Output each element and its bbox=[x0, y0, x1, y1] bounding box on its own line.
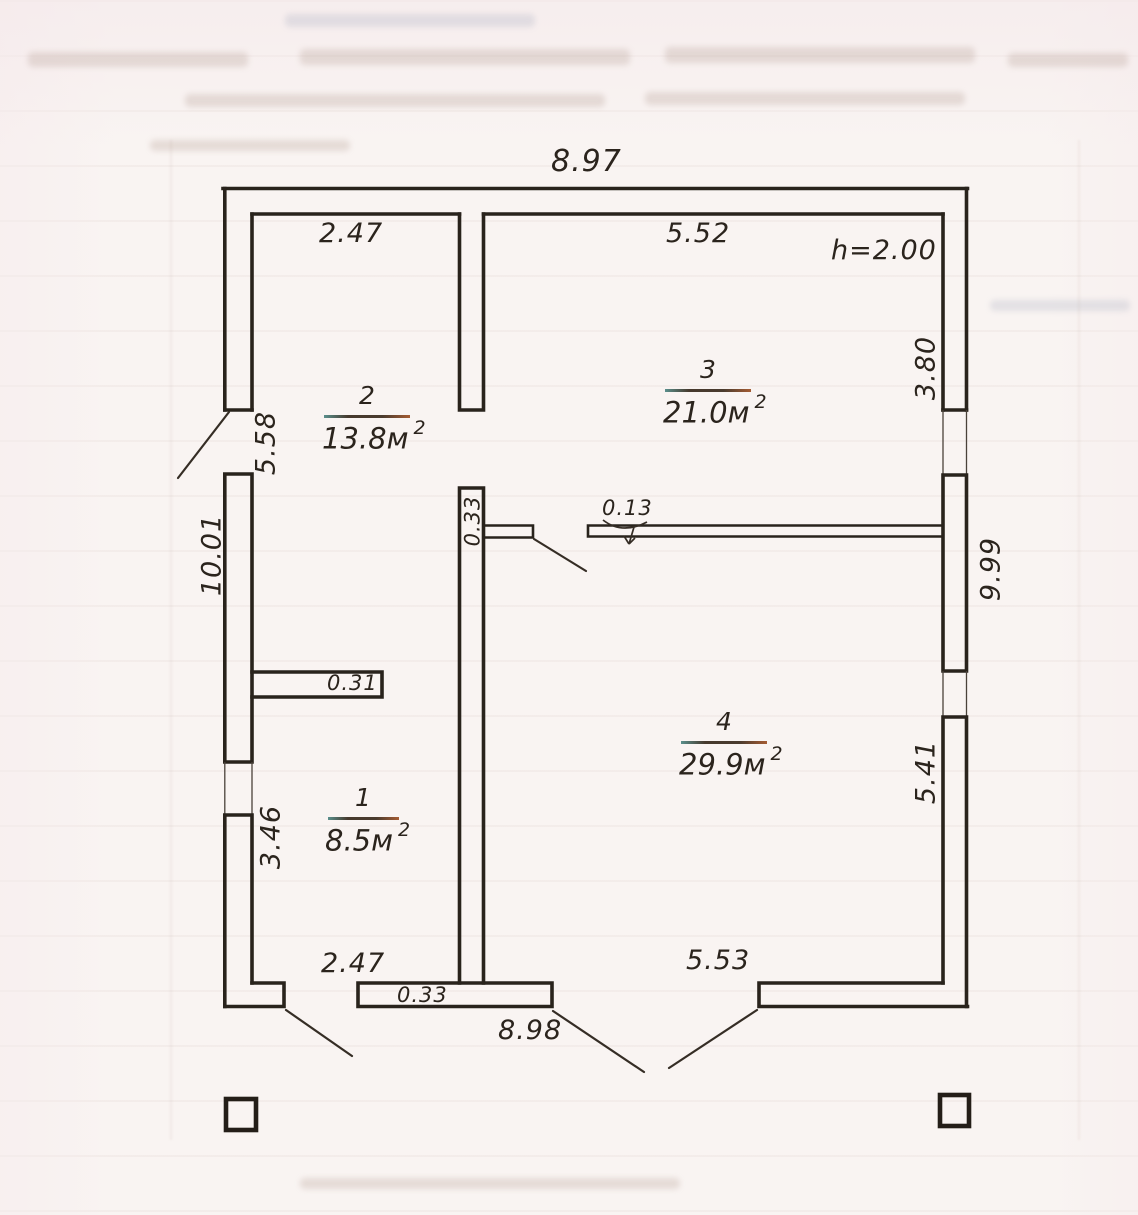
dim-right-overall: 9.99 bbox=[978, 537, 1005, 601]
room-area: 21.0м2 bbox=[663, 397, 753, 428]
room-area: 13.8м2 bbox=[322, 423, 412, 454]
room-fraction-line bbox=[324, 415, 410, 418]
room-label-2: 2 13.8м2 bbox=[322, 383, 412, 454]
room-label-3: 3 21.0м2 bbox=[663, 357, 753, 428]
top-wall bbox=[223, 189, 968, 215]
dim-room1-width: 2.47 bbox=[321, 950, 385, 977]
thin-partition bbox=[484, 526, 943, 538]
dim-partition-thickness: 0.13 bbox=[602, 498, 653, 519]
right-wall bbox=[943, 189, 967, 1007]
room-label-4: 4 29.9м2 bbox=[679, 709, 769, 780]
door-swing-line bbox=[534, 539, 586, 571]
stove-square-left bbox=[226, 1099, 256, 1130]
room-fraction-line bbox=[681, 741, 767, 744]
middle-wall bbox=[460, 214, 484, 983]
dim-mid-wall-thickness: 0.33 bbox=[463, 496, 484, 547]
dim-room2-width: 2.47 bbox=[319, 220, 383, 247]
dim-right-upper: 3.80 bbox=[913, 336, 940, 400]
dim-left-lower: 3.46 bbox=[258, 805, 285, 869]
dim-left-upper: 5.58 bbox=[253, 411, 280, 475]
room-fraction-line bbox=[665, 389, 751, 392]
room-number: 2 bbox=[322, 383, 412, 408]
dim-stub-wall-thickness: 0.31 bbox=[327, 673, 378, 694]
room-number: 3 bbox=[663, 357, 753, 382]
left-wall bbox=[225, 189, 252, 1007]
ceiling-height-note: h=2.00 bbox=[831, 237, 937, 264]
bottom-wall bbox=[225, 983, 968, 1007]
room-number: 4 bbox=[679, 709, 769, 734]
room-label-1: 1 8.5м2 bbox=[325, 785, 401, 856]
dim-bottom-wall-thickness: 0.33 bbox=[397, 985, 448, 1006]
dim-top-overall: 8.97 bbox=[551, 147, 622, 177]
dim-room3-width: 5.52 bbox=[666, 220, 730, 247]
dim-bottom-overall: 8.98 bbox=[498, 1017, 562, 1044]
dim-right-lower: 5.41 bbox=[913, 740, 940, 804]
stove-square-right bbox=[940, 1095, 969, 1126]
room-number: 1 bbox=[325, 785, 401, 810]
dim-leader-arc bbox=[603, 520, 647, 544]
room-fraction-line bbox=[328, 817, 399, 820]
stove-squares bbox=[226, 1095, 969, 1130]
room-area: 8.5м2 bbox=[325, 825, 401, 856]
floor-plan-drawing bbox=[0, 0, 1138, 1215]
floor-plan-canvas: 8.97 2.47 5.52 h=2.00 5.58 10.01 3.80 9.… bbox=[0, 0, 1138, 1215]
room-area: 29.9м2 bbox=[679, 749, 769, 780]
dim-room4-width: 5.53 bbox=[686, 947, 750, 974]
dim-left-overall: 10.01 bbox=[199, 514, 226, 596]
